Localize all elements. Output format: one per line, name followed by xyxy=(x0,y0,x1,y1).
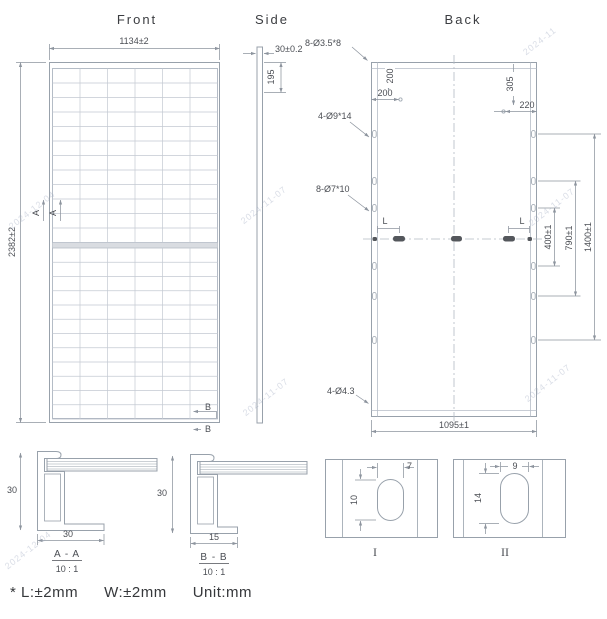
back-dim-1400: 1400±1 xyxy=(583,219,593,255)
side-view xyxy=(257,47,263,423)
leader-grounding-holes xyxy=(352,47,368,61)
side-dimensions xyxy=(243,54,286,93)
note-unit: Unit:mm xyxy=(193,584,252,601)
front-dimensions xyxy=(16,44,220,430)
tolerance-note: * L:±2mmW:±2mmUnit:mm xyxy=(10,584,278,601)
detail-one-dims xyxy=(355,463,414,531)
detail-two-label: II xyxy=(495,545,515,560)
side-thickness-dim: 30±0.2 xyxy=(275,44,302,54)
leader-mounting-slots-large xyxy=(350,122,369,137)
section-b-label-1: B xyxy=(205,402,211,412)
note-width-tolerance: W:±2mm xyxy=(104,584,167,601)
bb-width-dim: 15 xyxy=(202,532,226,542)
detail-two-dims xyxy=(479,462,539,534)
detail-one-label: I xyxy=(367,545,383,560)
center-slots xyxy=(373,236,533,242)
front-cell-grid-top xyxy=(53,69,218,243)
aa-height-dim: 30 xyxy=(4,485,20,495)
back-dim-220: 220 xyxy=(513,100,541,110)
aa-section-scale: 10 : 1 xyxy=(45,564,89,574)
back-dim-200-vertical: 200 xyxy=(385,64,395,88)
section-aa-drawing xyxy=(38,452,158,531)
bb-height-dim: 30 xyxy=(154,488,170,498)
drawing-linework xyxy=(0,0,607,619)
back-view xyxy=(363,55,546,424)
back-mounting-slots-small-label: 8-Ø7*10 xyxy=(316,184,350,194)
front-width-dim: 1134±2 xyxy=(109,36,159,46)
back-dim-l-left: L xyxy=(381,216,389,226)
technical-drawing-canvas: Front Side Back 1134±2 2382±2 A A B B 30… xyxy=(0,0,607,619)
back-grounding-holes-label: 8-Ø3.5*8 xyxy=(305,38,341,48)
aa-section-title: A - A xyxy=(45,549,89,560)
detail-two-height-dim: 14 xyxy=(473,490,483,506)
detail-one-width-dim: 7 xyxy=(407,461,412,471)
back-dim-200-horizontal: 200 xyxy=(371,88,399,98)
leader-mounting-slots-small xyxy=(348,195,369,211)
bb-section-title: B - B xyxy=(192,552,236,563)
back-dim-1095: 1095±1 xyxy=(429,420,479,430)
section-b-label-2: B xyxy=(205,424,211,434)
front-view-title: Front xyxy=(102,12,172,27)
front-cell-grid-bottom xyxy=(53,248,218,419)
aa-width-dim: 30 xyxy=(56,529,80,539)
section-a-label-2: A xyxy=(48,208,58,218)
front-mid-divider xyxy=(53,243,218,249)
back-drain-holes-label: 4-Ø4.3 xyxy=(327,386,355,396)
grounding-hole-left xyxy=(399,98,402,101)
detail-two-width-dim: 9 xyxy=(508,461,522,471)
leader-drain-holes xyxy=(356,395,369,404)
detail-one-drawing xyxy=(326,460,438,538)
note-length-tolerance: * L:±2mm xyxy=(10,584,78,601)
back-dim-790: 790±1 xyxy=(564,223,574,253)
section-bb-drawing xyxy=(191,455,308,534)
detail-two-drawing xyxy=(454,460,566,538)
front-view xyxy=(50,63,220,423)
back-mounting-slots-large-label: 4-Ø9*14 xyxy=(318,111,352,121)
side-view-title: Side xyxy=(237,12,307,27)
detail-one-height-dim: 10 xyxy=(349,492,359,508)
back-dim-l-right: L xyxy=(518,216,526,226)
bb-section-scale: 10 : 1 xyxy=(192,567,236,577)
back-dim-400: 400±1 xyxy=(543,222,553,252)
side-edge-offset-dim: 195 xyxy=(266,66,276,88)
back-view-title: Back xyxy=(428,12,498,27)
back-dim-305: 305 xyxy=(505,72,515,96)
